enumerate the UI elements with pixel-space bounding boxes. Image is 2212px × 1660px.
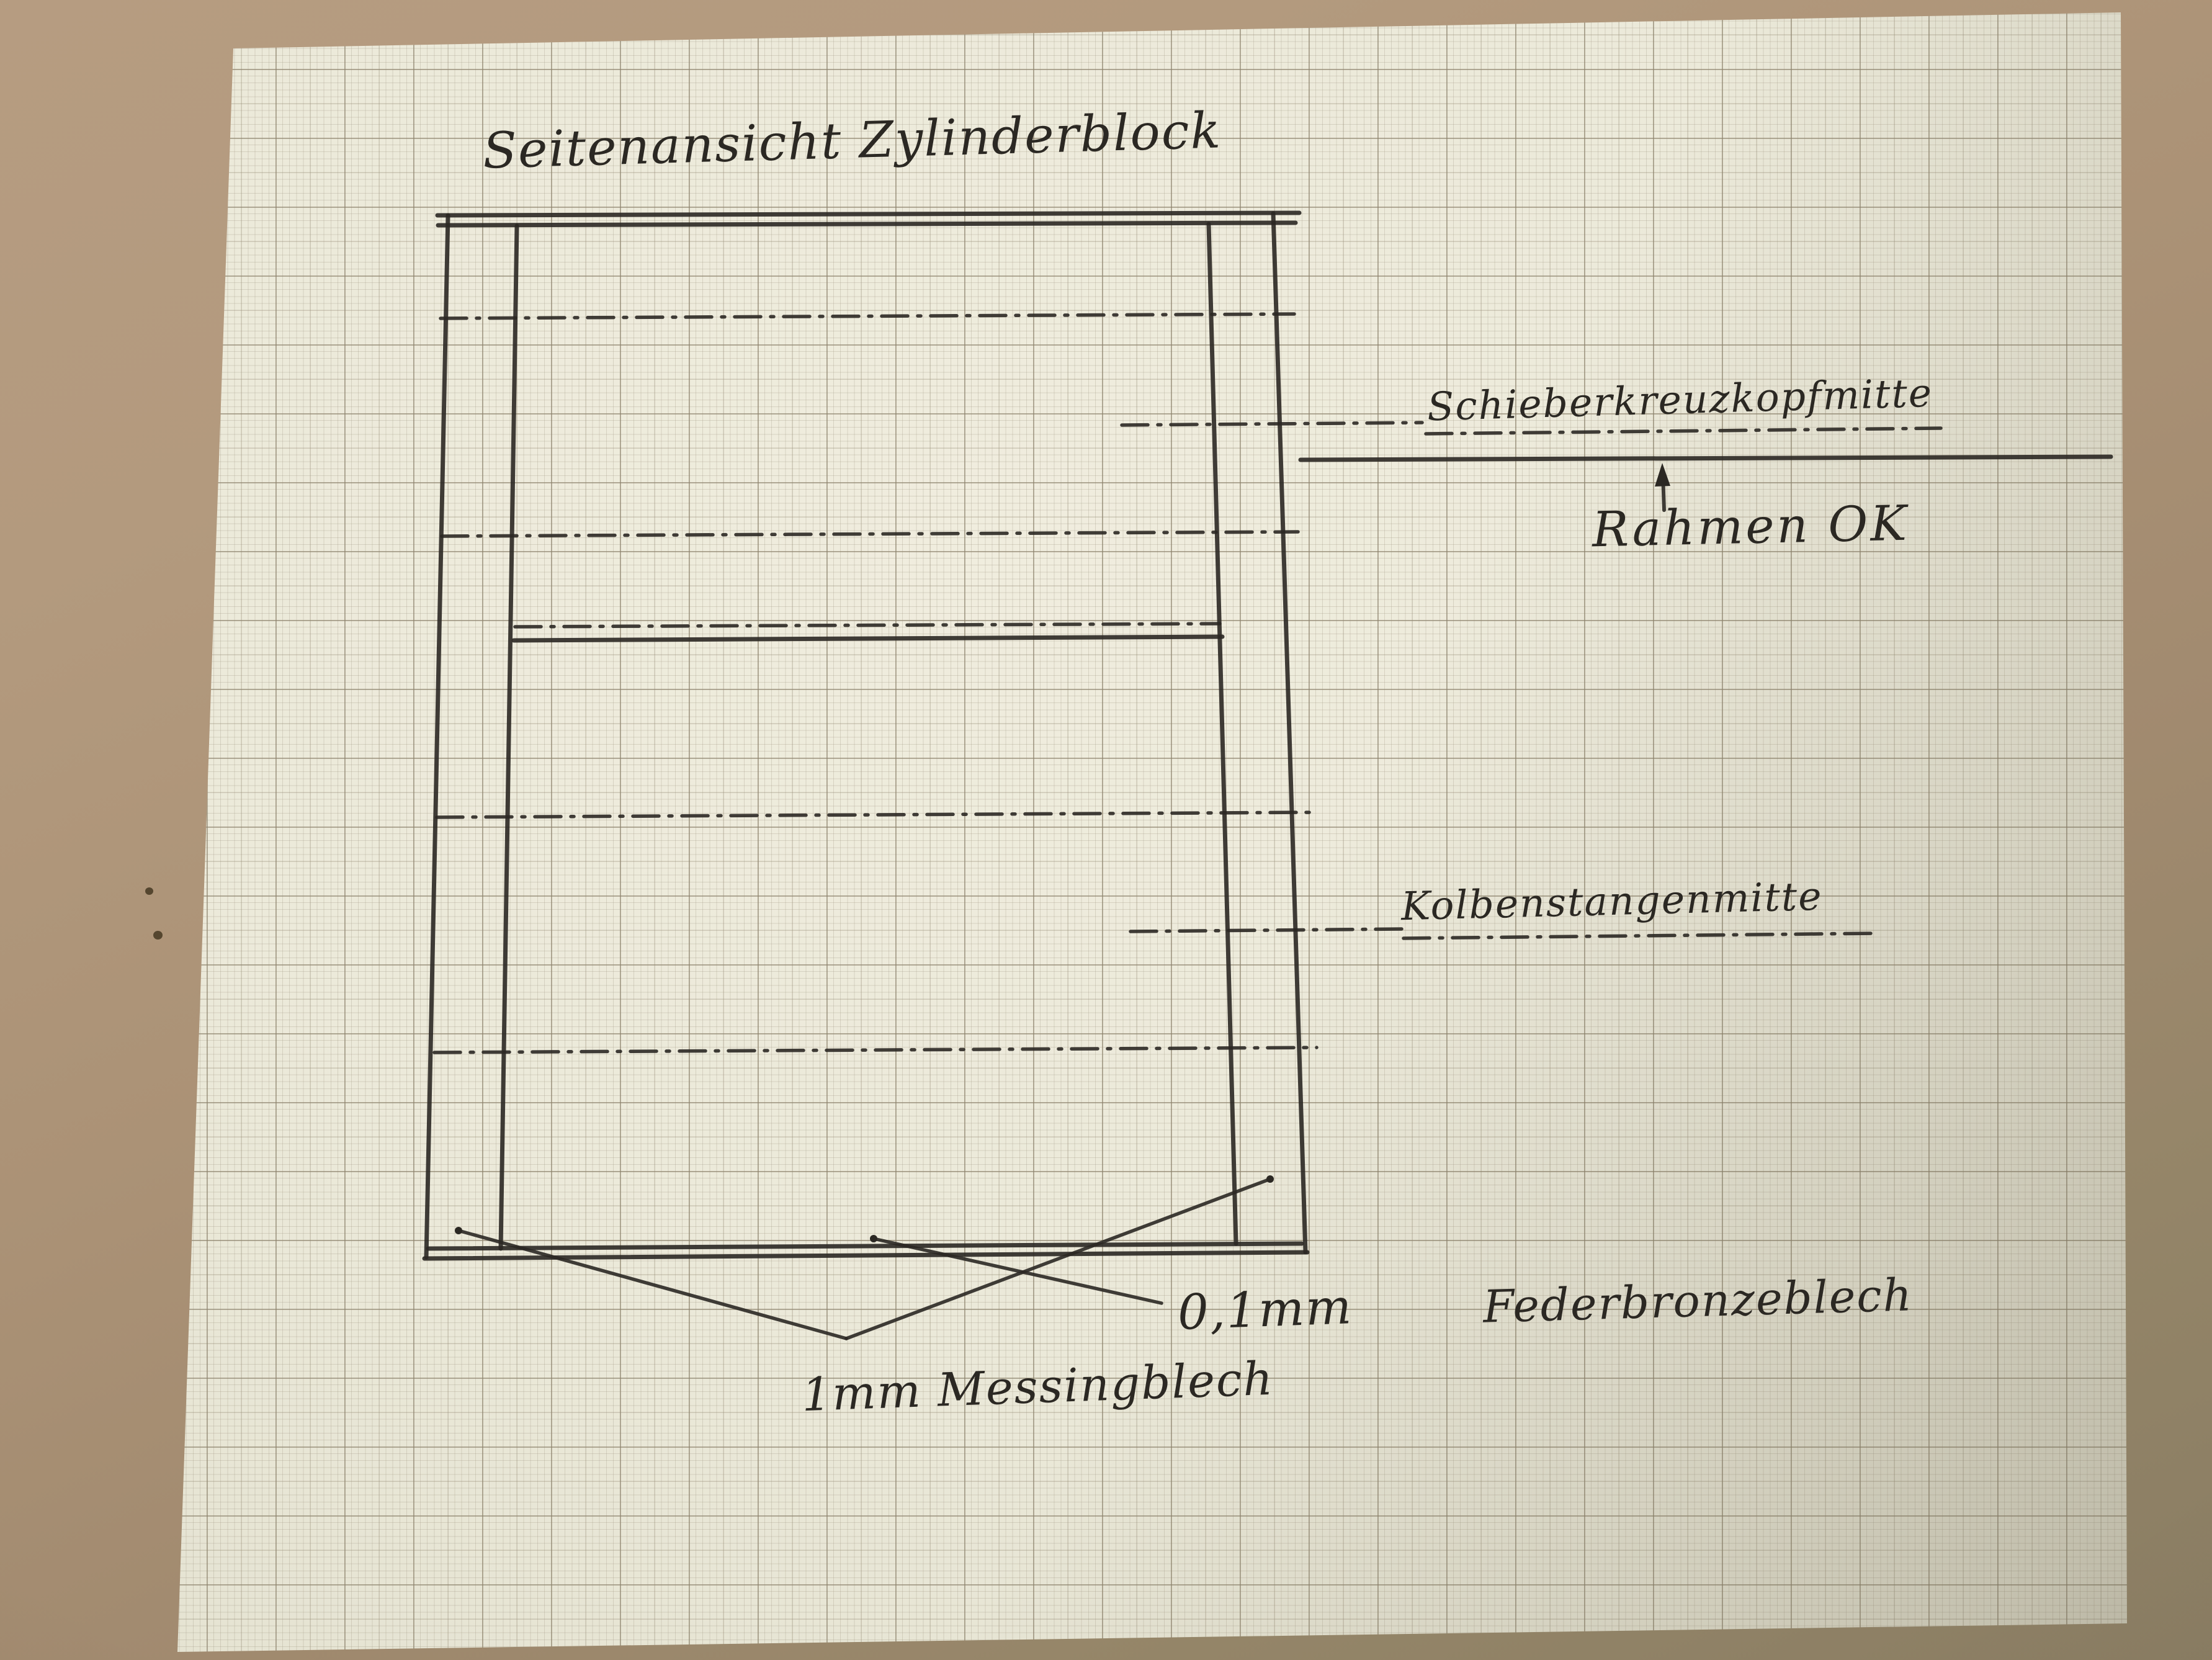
frame-top-line [1301, 457, 2111, 460]
bronze-sheet-thickness-label: 0,1mm [1177, 1279, 1354, 1341]
photographed-sketch: Seitenansicht Zylinderblock Schieberkreu… [0, 0, 2212, 1660]
frame-top-edge-label: Rahmen OK [1592, 496, 1909, 559]
piston-rod-center-line [1131, 929, 1875, 938]
cylinder-block-outline [424, 213, 1307, 1258]
